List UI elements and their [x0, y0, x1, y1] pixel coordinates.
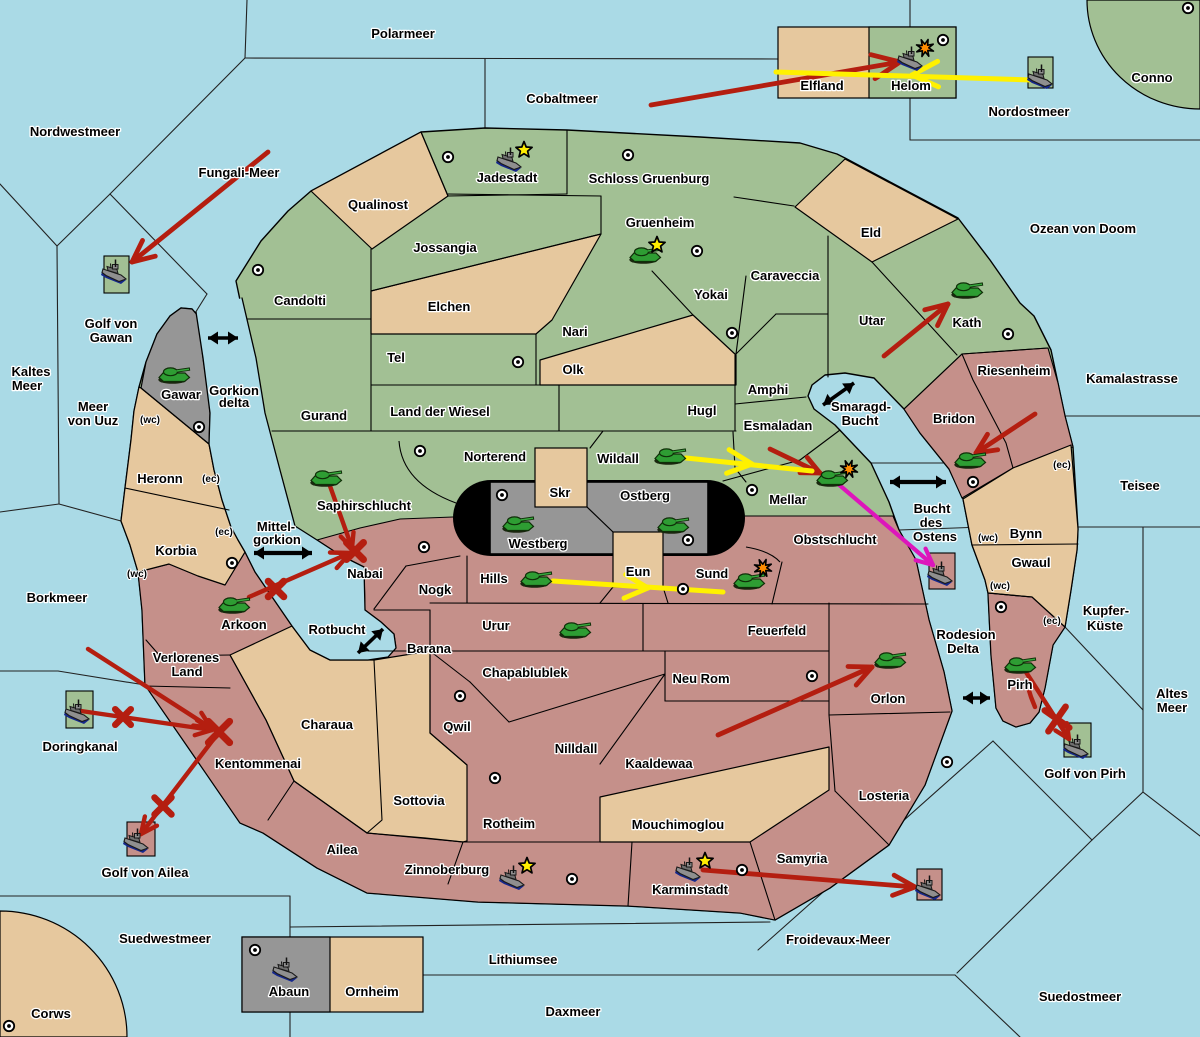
svg-text:Gruenheim: Gruenheim — [626, 215, 695, 230]
svg-text:Gawan: Gawan — [90, 330, 133, 345]
svg-text:Golf von Pirh: Golf von Pirh — [1044, 766, 1126, 781]
svg-text:Heronn: Heronn — [137, 471, 183, 486]
svg-text:Daxmeer: Daxmeer — [546, 1004, 601, 1019]
svg-text:Kaaldewaa: Kaaldewaa — [625, 756, 693, 771]
svg-text:Orlon: Orlon — [871, 691, 906, 706]
svg-text:Lithiumsee: Lithiumsee — [489, 952, 558, 967]
svg-text:Borkmeer: Borkmeer — [27, 590, 88, 605]
svg-text:Rodesion: Rodesion — [936, 627, 995, 642]
svg-text:Arkoon: Arkoon — [221, 617, 267, 632]
svg-text:Golf von: Golf von — [85, 316, 138, 331]
svg-text:Kamalastrasse: Kamalastrasse — [1086, 371, 1178, 386]
svg-text:Yokai: Yokai — [694, 287, 728, 302]
svg-text:Obstschlucht: Obstschlucht — [793, 532, 877, 547]
svg-text:Delta: Delta — [947, 641, 980, 656]
svg-text:delta: delta — [219, 395, 250, 410]
svg-text:Doringkanal: Doringkanal — [42, 739, 117, 754]
svg-text:Küste: Küste — [1087, 618, 1123, 633]
svg-text:(wc): (wc) — [140, 415, 160, 426]
svg-text:Nogk: Nogk — [419, 582, 452, 597]
svg-text:Jossangia: Jossangia — [413, 240, 477, 255]
svg-text:(wc): (wc) — [990, 581, 1010, 592]
svg-text:Cobaltmeer: Cobaltmeer — [526, 91, 598, 106]
svg-text:gorkion: gorkion — [253, 532, 301, 547]
svg-text:Bucht: Bucht — [914, 501, 952, 516]
svg-text:(ec): (ec) — [202, 474, 220, 485]
svg-text:Nari: Nari — [562, 324, 587, 339]
svg-text:Conno: Conno — [1131, 70, 1172, 85]
svg-text:Westberg: Westberg — [509, 536, 568, 551]
svg-text:Norterend: Norterend — [464, 449, 526, 464]
svg-text:Abaun: Abaun — [269, 984, 310, 999]
svg-text:Eld: Eld — [861, 225, 881, 240]
svg-text:Qwil: Qwil — [443, 719, 470, 734]
svg-text:Teisee: Teisee — [1120, 478, 1160, 493]
svg-text:Skr: Skr — [550, 485, 571, 500]
svg-text:Wildall: Wildall — [597, 451, 639, 466]
svg-text:Sottovia: Sottovia — [393, 793, 445, 808]
svg-text:Candolti: Candolti — [274, 293, 326, 308]
svg-text:Polarmeer: Polarmeer — [371, 26, 435, 41]
svg-text:Bucht: Bucht — [842, 413, 880, 428]
svg-text:Meer: Meer — [78, 399, 108, 414]
svg-text:Kaltes: Kaltes — [11, 364, 50, 379]
svg-text:Fungali-Meer: Fungali-Meer — [199, 165, 280, 180]
svg-text:Bridon: Bridon — [933, 411, 975, 426]
svg-text:Hills: Hills — [480, 571, 507, 586]
svg-text:des: des — [920, 515, 942, 530]
svg-text:Meer: Meer — [12, 378, 42, 393]
svg-text:Hugl: Hugl — [688, 403, 717, 418]
svg-text:Esmaladan: Esmaladan — [744, 418, 813, 433]
svg-text:Sund: Sund — [696, 566, 729, 581]
svg-text:Nordwestmeer: Nordwestmeer — [30, 124, 120, 139]
svg-text:Mellar: Mellar — [769, 492, 807, 507]
svg-text:Barana: Barana — [407, 641, 452, 656]
svg-text:Suedwestmeer: Suedwestmeer — [119, 931, 211, 946]
svg-text:Olk: Olk — [563, 362, 585, 377]
svg-text:(wc): (wc) — [127, 569, 147, 580]
svg-text:Ostberg: Ostberg — [620, 488, 670, 503]
svg-text:Ailea: Ailea — [326, 842, 358, 857]
svg-text:Corws: Corws — [31, 1006, 71, 1021]
svg-text:Ornheim: Ornheim — [345, 984, 398, 999]
svg-text:Ozean von Doom: Ozean von Doom — [1030, 221, 1136, 236]
svg-text:(ec): (ec) — [1053, 460, 1071, 471]
svg-text:Nabai: Nabai — [347, 566, 382, 581]
svg-text:Neu Rom: Neu Rom — [672, 671, 729, 686]
svg-text:Kentommenai: Kentommenai — [215, 756, 301, 771]
svg-text:Meer: Meer — [1157, 700, 1187, 715]
svg-text:Jadestadt: Jadestadt — [477, 170, 538, 185]
svg-text:Kupfer-: Kupfer- — [1083, 603, 1129, 618]
svg-text:Feuerfeld: Feuerfeld — [748, 623, 807, 638]
svg-text:Samyria: Samyria — [777, 851, 828, 866]
svg-text:Tel: Tel — [387, 350, 405, 365]
svg-text:Gawar: Gawar — [161, 387, 201, 402]
svg-text:Nilldall: Nilldall — [555, 741, 598, 756]
svg-text:von Uuz: von Uuz — [68, 413, 119, 428]
svg-text:Urur: Urur — [482, 618, 509, 633]
svg-text:Utar: Utar — [859, 313, 885, 328]
svg-text:Smaragd-: Smaragd- — [831, 399, 891, 414]
svg-text:Amphi: Amphi — [748, 382, 788, 397]
svg-text:Charaua: Charaua — [301, 717, 354, 732]
svg-text:Bynn: Bynn — [1010, 526, 1043, 541]
svg-text:Chapablublek: Chapablublek — [482, 665, 568, 680]
svg-text:Mouchimoglou: Mouchimoglou — [632, 817, 724, 832]
svg-text:Kath: Kath — [953, 315, 982, 330]
svg-text:Helom: Helom — [891, 78, 931, 93]
svg-text:Verlorenes: Verlorenes — [153, 650, 220, 665]
svg-text:Zinnoberburg: Zinnoberburg — [405, 862, 490, 877]
svg-text:Ostens: Ostens — [913, 529, 957, 544]
svg-text:Losteria: Losteria — [859, 788, 910, 803]
svg-text:Nordostmeer: Nordostmeer — [989, 104, 1070, 119]
svg-text:Caraveccia: Caraveccia — [751, 268, 820, 283]
svg-text:Suedostmeer: Suedostmeer — [1039, 989, 1121, 1004]
svg-text:Schloss Gruenburg: Schloss Gruenburg — [589, 171, 710, 186]
svg-text:Korbia: Korbia — [155, 543, 197, 558]
svg-text:(ec): (ec) — [215, 527, 233, 538]
svg-text:Elfland: Elfland — [800, 78, 843, 93]
svg-text:Land: Land — [171, 664, 202, 679]
svg-text:Land der Wiesel: Land der Wiesel — [390, 404, 490, 419]
svg-text:Froidevaux-Meer: Froidevaux-Meer — [786, 932, 890, 947]
svg-text:Altes: Altes — [1156, 686, 1188, 701]
svg-text:Golf von Ailea: Golf von Ailea — [102, 865, 190, 880]
svg-text:Rotbucht: Rotbucht — [308, 622, 366, 637]
svg-text:Gwaul: Gwaul — [1011, 555, 1050, 570]
svg-text:Riesenheim: Riesenheim — [978, 363, 1051, 378]
svg-text:Elchen: Elchen — [428, 299, 471, 314]
svg-text:Eun: Eun — [626, 564, 651, 579]
svg-text:Saphirschlucht: Saphirschlucht — [317, 498, 412, 513]
svg-text:Karminstadt: Karminstadt — [652, 882, 729, 897]
svg-text:(ec): (ec) — [1043, 616, 1061, 627]
svg-text:Rotheim: Rotheim — [483, 816, 535, 831]
svg-text:(wc): (wc) — [978, 533, 998, 544]
svg-text:Pirh: Pirh — [1007, 677, 1032, 692]
svg-text:Qualinost: Qualinost — [348, 197, 409, 212]
svg-text:Gurand: Gurand — [301, 408, 347, 423]
